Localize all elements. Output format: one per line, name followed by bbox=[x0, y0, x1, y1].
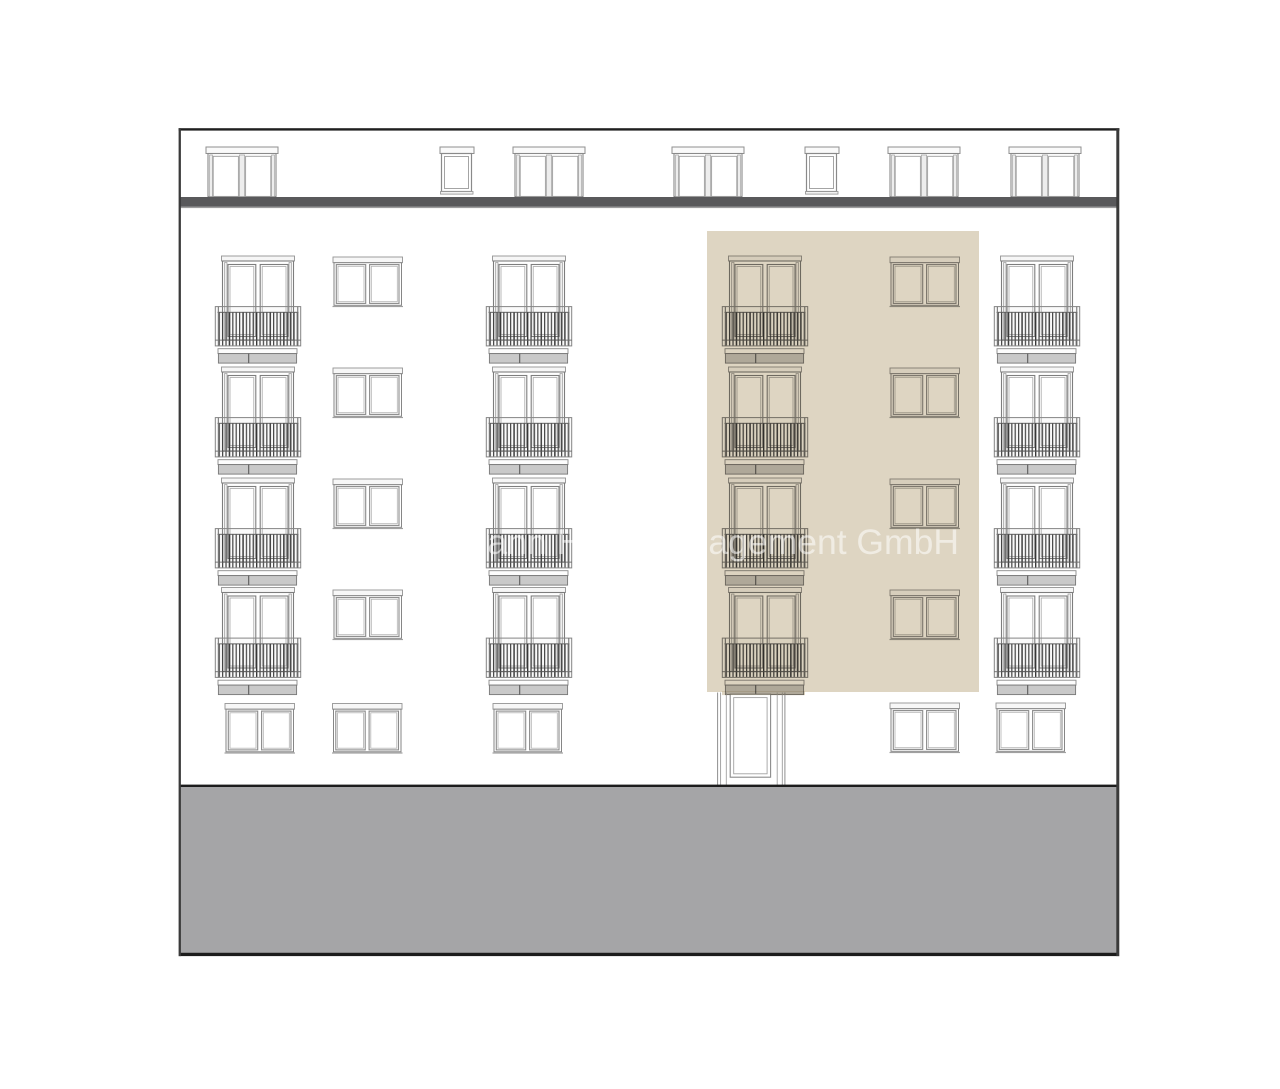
svg-text:Bergmann Hausmanagement GmbH: Bergmann Hausmanagement GmbH bbox=[383, 522, 959, 562]
